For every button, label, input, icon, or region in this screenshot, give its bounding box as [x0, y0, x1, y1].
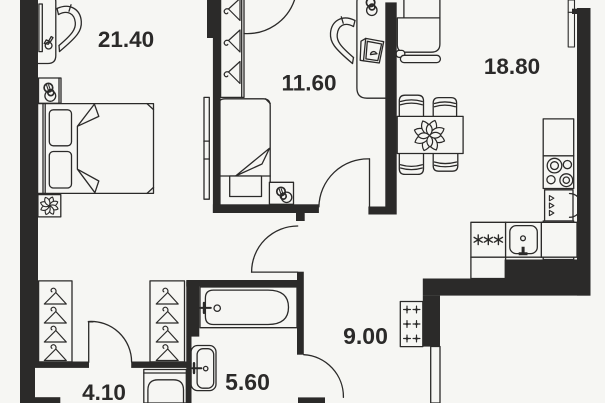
svg-text:9.00: 9.00	[343, 323, 388, 349]
svg-text:18.80: 18.80	[484, 54, 540, 79]
svg-text:21.40: 21.40	[98, 27, 154, 52]
svg-text:5.60: 5.60	[225, 369, 270, 395]
svg-text:4.10: 4.10	[82, 380, 126, 403]
svg-text:11.60: 11.60	[281, 71, 336, 96]
